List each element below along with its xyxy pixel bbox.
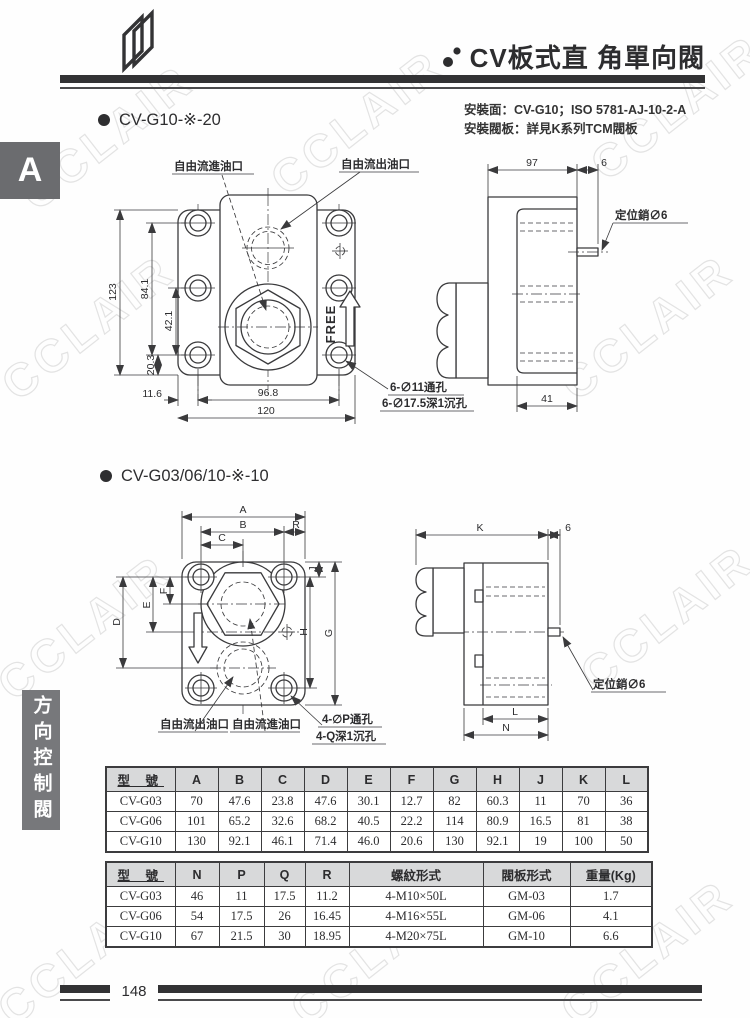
dimension-table: 型 號ABCDEFGHJKLCV-G037047.623.847.630.112… xyxy=(105,766,649,853)
table-row: CV-G037047.623.847.630.112.78260.3117036 xyxy=(106,792,648,812)
table-cell: 82 xyxy=(433,792,476,812)
table-cell: 92.1 xyxy=(476,832,519,853)
table-cell: 50 xyxy=(605,832,648,853)
dim-F: F xyxy=(158,588,170,594)
dim-C: C xyxy=(218,532,226,544)
header-rule-thin xyxy=(60,87,705,89)
dim-left-offset: 11.6 xyxy=(142,388,162,400)
column-header: N xyxy=(175,862,219,887)
table-cell: 60.3 xyxy=(476,792,519,812)
table-cell: 114 xyxy=(433,812,476,832)
column-header: P xyxy=(219,862,264,887)
dim-mid: 42.1 xyxy=(163,311,175,332)
table-cell: 100 xyxy=(562,832,605,853)
mounting-info: 安裝面：CV-G10；ISO 5781-AJ-10-2-A 安裝閥板：詳見K系列… xyxy=(464,101,686,139)
table-cell: 67 xyxy=(175,927,219,948)
technical-drawing-cv-g10: FREE 123 84.1 42.1 20.3 11.6 96.8 120 自由… xyxy=(60,148,750,442)
label-free-flow-outlet: 自由流出油口 xyxy=(160,717,229,731)
column-header: F xyxy=(390,767,433,792)
column-header: Q xyxy=(264,862,305,887)
dim-depth: 97 xyxy=(526,157,538,169)
table-cell: 32.6 xyxy=(261,812,304,832)
brand-logo-icon xyxy=(110,7,166,73)
table-cell: CV-G10 xyxy=(106,832,175,853)
table-cell: 4-M16×55L xyxy=(349,907,483,927)
table-cell: 30 xyxy=(264,927,305,948)
column-header: L xyxy=(605,767,648,792)
table-cell: 46 xyxy=(175,887,219,907)
dim-pin-length: 6 xyxy=(601,157,607,169)
table-cell: 46.1 xyxy=(261,832,304,853)
table-cell: 65.2 xyxy=(218,812,261,832)
dim-B: B xyxy=(239,519,246,531)
column-header: E xyxy=(347,767,390,792)
model-heading-cv-g10: CV-G10-※-20 xyxy=(98,110,221,130)
table-cell: CV-G03 xyxy=(106,792,175,812)
table-cell: 11.2 xyxy=(305,887,349,907)
table-cell: 18.95 xyxy=(305,927,349,948)
label-free-flow-inlet: 自由流進油口 xyxy=(232,717,301,731)
dim-hole-span-h: 96.8 xyxy=(258,387,279,399)
table-row: CV-G0610165.232.668.240.522.211480.916.5… xyxy=(106,812,648,832)
label-free-flow-outlet: 自由流出油口 xyxy=(341,157,410,171)
table-cell: 81 xyxy=(562,812,605,832)
flow-direction-label: FREE xyxy=(323,305,338,344)
table-cell: GM-10 xyxy=(483,927,570,948)
dim-E: E xyxy=(141,601,153,608)
table-cell: 46.0 xyxy=(347,832,390,853)
technical-drawing-cv-g03-06-10: A B R C D E F J H G 自由流出油口 自由流進油口 4-∅P通孔 xyxy=(60,495,750,763)
table-cell: 68.2 xyxy=(304,812,347,832)
mounting-surface: 安裝面：CV-G10；ISO 5781-AJ-10-2-A xyxy=(464,101,686,120)
table-cell: 70 xyxy=(562,792,605,812)
table-cell: 17.5 xyxy=(219,907,264,927)
table-cell: 20.6 xyxy=(390,832,433,853)
column-header: H xyxy=(476,767,519,792)
table-cell: 80.9 xyxy=(476,812,519,832)
dim-bottom-offset: 20.3 xyxy=(145,355,157,376)
column-header: B xyxy=(218,767,261,792)
bullet-icon xyxy=(98,114,110,126)
column-header: 型 號 xyxy=(106,862,175,887)
table-cell: GM-06 xyxy=(483,907,570,927)
table-cell: 30.1 xyxy=(347,792,390,812)
label-through-holes: 4-∅P通孔 xyxy=(322,713,373,726)
table-cell: 26 xyxy=(264,907,305,927)
locating-pin xyxy=(548,628,560,636)
category-tab-directional-control-valve: 方向控制閥 xyxy=(22,690,60,830)
hex-plug-profile xyxy=(416,568,433,636)
table-cell: 130 xyxy=(175,832,218,853)
dim-width-total: 120 xyxy=(257,405,275,417)
table-cell: 11 xyxy=(519,792,562,812)
column-header: 閥板形式 xyxy=(483,862,570,887)
column-header: G xyxy=(433,767,476,792)
dim-hole-span-v: 84.1 xyxy=(139,279,151,300)
column-header: J xyxy=(519,767,562,792)
dim-J: J xyxy=(307,566,319,571)
table-cell: CV-G06 xyxy=(106,812,175,832)
table-cell: 38 xyxy=(605,812,648,832)
mounting-plate: 安裝閥板：詳見K系列TCM閥板 xyxy=(464,120,686,139)
page-title-row: CV板式直 角單向閥 xyxy=(400,38,705,75)
column-header: K xyxy=(562,767,605,792)
footer-bar-left xyxy=(60,985,110,993)
dim-H: H xyxy=(298,628,310,636)
bullet-icon xyxy=(100,470,112,482)
column-header: 型 號 xyxy=(106,767,175,792)
table-cell: 6.6 xyxy=(570,927,652,948)
column-header: R xyxy=(305,862,349,887)
dim-R: R xyxy=(292,519,300,531)
header-rule-thick xyxy=(60,75,705,83)
table-cell: 19 xyxy=(519,832,562,853)
table-cell: 17.5 xyxy=(264,887,305,907)
label-through-holes: 6-∅11通孔 xyxy=(390,381,447,394)
dim-A: A xyxy=(239,504,246,516)
model-heading-text: CV-G10-※-20 xyxy=(119,110,221,130)
table-row: CV-G03461117.511.24-M10×50LGM-031.7 xyxy=(106,887,652,907)
column-header: C xyxy=(261,767,304,792)
table-cell: 11 xyxy=(219,887,264,907)
column-header: 螺紋形式 xyxy=(349,862,483,887)
table-cell: 70 xyxy=(175,792,218,812)
footer-line-left xyxy=(60,999,110,1001)
table-cell: 47.6 xyxy=(304,792,347,812)
table-cell: 1.7 xyxy=(570,887,652,907)
dim-height-total: 123 xyxy=(107,283,119,301)
table-cell: 101 xyxy=(175,812,218,832)
table-cell: 22.2 xyxy=(390,812,433,832)
table-cell: 36 xyxy=(605,792,648,812)
table-cell: 71.4 xyxy=(304,832,347,853)
footer-line-right xyxy=(158,999,702,1001)
dim-G: G xyxy=(323,629,335,637)
dim-port-depth: 41 xyxy=(541,393,553,405)
table-cell: 54 xyxy=(175,907,219,927)
table-cell: 23.8 xyxy=(261,792,304,812)
model-heading-cv-g03-06-10: CV-G03/06/10-※-10 xyxy=(100,466,269,486)
label-locating-pin: 定位銷∅6 xyxy=(593,677,645,691)
table-cell: 12.7 xyxy=(390,792,433,812)
title-dots-icon xyxy=(442,43,464,69)
page-number: 148 xyxy=(112,983,156,1000)
dim-L: L xyxy=(512,706,518,718)
table-row: CV-G1013092.146.171.446.020.613092.11910… xyxy=(106,832,648,853)
table-cell: CV-G06 xyxy=(106,907,175,927)
dim-K: K xyxy=(476,522,483,534)
table-cell: 130 xyxy=(433,832,476,853)
table-cell: CV-G10 xyxy=(106,927,175,948)
catalog-page: CCLAIR CCLAIR CCLAIR CCLAIR CCLAIR CCLAI… xyxy=(0,0,750,1018)
table-cell: 4.1 xyxy=(570,907,652,927)
label-locating-pin: 定位銷∅6 xyxy=(615,208,667,222)
column-header: A xyxy=(175,767,218,792)
table-cell: 4-M20×75L xyxy=(349,927,483,948)
table-cell: 4-M10×50L xyxy=(349,887,483,907)
page-title: CV板式直 角單向閥 xyxy=(470,43,705,73)
table-cell: 47.6 xyxy=(218,792,261,812)
table-header-row: 型 號ABCDEFGHJKL xyxy=(106,767,648,792)
table-cell: CV-G03 xyxy=(106,887,175,907)
table-cell: 92.1 xyxy=(218,832,261,853)
table-header-row: 型 號NPQR螺紋形式閥板形式重量(Kg) xyxy=(106,862,652,887)
spec-table: 型 號NPQR螺紋形式閥板形式重量(Kg)CV-G03461117.511.24… xyxy=(105,861,653,948)
table-cell: 16.5 xyxy=(519,812,562,832)
table-cell: 40.5 xyxy=(347,812,390,832)
table-cell: 21.5 xyxy=(219,927,264,948)
model-heading-text: CV-G03/06/10-※-10 xyxy=(121,466,269,486)
table-cell: GM-03 xyxy=(483,887,570,907)
footer-bar-right xyxy=(158,985,702,993)
label-counterbore-holes: 6-∅17.5深1沉孔 xyxy=(382,396,468,410)
table-cell: 16.45 xyxy=(305,907,349,927)
table-row: CV-G065417.52616.454-M16×55LGM-064.1 xyxy=(106,907,652,927)
column-header: 重量(Kg) xyxy=(570,862,652,887)
label-counterbore-holes: 4-Q深1沉孔 xyxy=(316,729,377,743)
dim-N: N xyxy=(502,722,510,734)
label-free-flow-inlet: 自由流進油口 xyxy=(174,159,243,173)
dim-pin-length: 6 xyxy=(565,522,571,534)
hex-plug-profile xyxy=(437,283,456,378)
section-tab-a: A xyxy=(0,142,60,199)
column-header: D xyxy=(304,767,347,792)
dim-D: D xyxy=(111,618,123,626)
table-row: CV-G106721.53018.954-M20×75LGM-106.6 xyxy=(106,927,652,948)
